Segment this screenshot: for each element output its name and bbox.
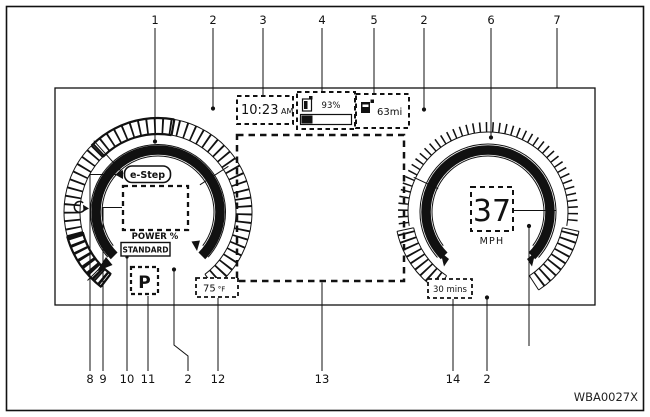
speed-unit: MPH	[480, 236, 505, 247]
leader-dot	[211, 106, 215, 110]
outside-temperature-display: 75°F	[196, 278, 238, 297]
callout-label: 12	[211, 372, 226, 386]
clock-period: AM	[281, 107, 293, 116]
callout-label: 9	[99, 372, 106, 386]
battery-bar-fill	[302, 116, 313, 124]
temperature-number: 75	[203, 284, 216, 295]
callout-label: 6	[487, 13, 494, 27]
callout-label: 2	[184, 372, 191, 386]
clock-time-value: 10:23	[241, 103, 278, 118]
figure-code: WBA0027X	[574, 390, 638, 404]
callout-label: 14	[446, 372, 461, 386]
e-step-label: e-Step	[130, 170, 165, 181]
callout-label: 3	[259, 13, 266, 27]
charging-time-display: 30 mins	[428, 279, 472, 298]
callout-label: 4	[318, 13, 325, 27]
callout-label: 10	[120, 372, 135, 386]
battery-bar-gauge	[301, 115, 352, 125]
leader-dot	[153, 139, 157, 143]
leader-dot	[422, 107, 426, 111]
mode-info-highlight-box	[123, 186, 188, 230]
leader-dot	[485, 295, 489, 299]
speed-value: 37	[473, 194, 511, 229]
battery-percent: 93%	[322, 101, 341, 111]
callout-label: 11	[141, 372, 156, 386]
callout-label: 8	[86, 372, 93, 386]
shift-position-label: P	[138, 273, 150, 293]
callout-label: 1	[151, 13, 158, 27]
drive-mode-label: STANDARD	[122, 246, 168, 255]
charging-time-value: 30 mins	[433, 285, 468, 295]
range-value: 63mi	[377, 107, 402, 118]
callout-label: 13	[315, 372, 330, 386]
instrument-cluster-diagram: WBA0027X 1 2 3 4 5 2 6 7 8 9 10 11 2 12 …	[0, 0, 650, 417]
callout-label: 2	[420, 13, 427, 27]
leader-dot	[172, 267, 176, 271]
callout-label: 2	[209, 13, 216, 27]
callout-label: 2	[483, 372, 490, 386]
power-label: POWER %	[132, 232, 179, 242]
callout-label: 7	[553, 13, 560, 27]
leader-dot	[527, 224, 531, 228]
leader-dot	[489, 135, 493, 139]
temperature-unit: °F	[218, 286, 226, 294]
temperature-value: 75°F	[203, 284, 225, 295]
callout-label: 5	[370, 13, 377, 27]
